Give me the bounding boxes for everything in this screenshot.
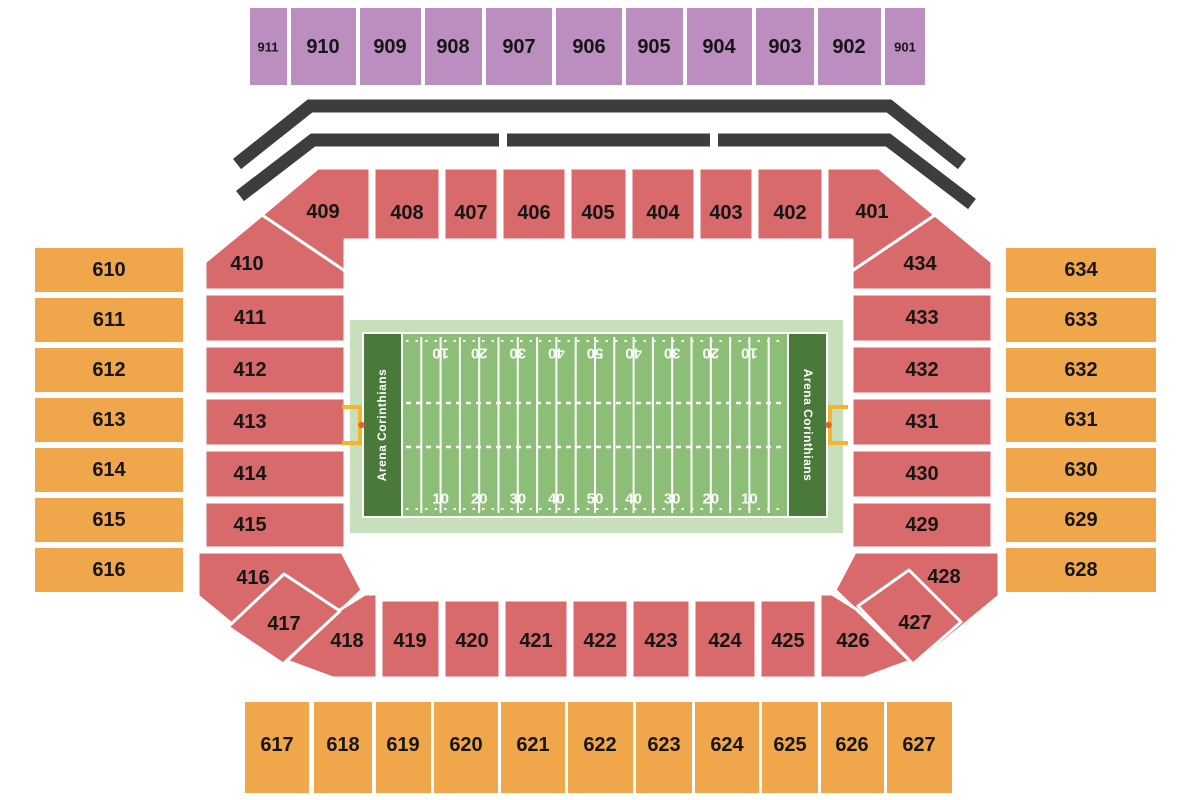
- section-901[interactable]: 901: [885, 8, 925, 85]
- section-label: 418: [330, 630, 363, 652]
- section-403[interactable]: 403: [699, 168, 753, 240]
- section-label: 432: [905, 359, 938, 381]
- section-label: 615: [92, 509, 125, 531]
- goalpost-right-dot: [825, 422, 831, 428]
- section-407[interactable]: 407: [444, 168, 498, 240]
- section-shape[interactable]: [205, 398, 345, 446]
- section-632[interactable]: 632: [1006, 348, 1156, 392]
- yard-number: 30: [509, 345, 526, 362]
- section-626[interactable]: 626: [821, 702, 884, 793]
- section-label: 431: [905, 411, 938, 433]
- section-615[interactable]: 615: [35, 498, 183, 542]
- section-label: 625: [773, 734, 806, 756]
- section-430[interactable]: 430: [852, 450, 992, 498]
- section-624[interactable]: 624: [695, 702, 759, 793]
- section-429[interactable]: 429: [852, 502, 992, 548]
- section-634[interactable]: 634: [1006, 248, 1156, 292]
- yard-number: 10: [741, 345, 758, 362]
- section-406[interactable]: 406: [502, 168, 566, 240]
- section-902[interactable]: 902: [818, 8, 881, 85]
- section-label: 633: [1064, 309, 1097, 331]
- section-620[interactable]: 620: [434, 702, 498, 793]
- section-911[interactable]: 911: [250, 8, 287, 85]
- section-611[interactable]: 611: [35, 298, 183, 342]
- section-label: 611: [93, 309, 125, 331]
- section-label: 430: [905, 463, 938, 485]
- section-label: 412: [233, 359, 266, 381]
- section-433[interactable]: 433: [852, 294, 992, 342]
- section-629[interactable]: 629: [1006, 498, 1156, 542]
- section-label: 413: [233, 411, 266, 433]
- section-label: 618: [326, 734, 359, 756]
- section-907[interactable]: 907: [486, 8, 552, 85]
- section-619[interactable]: 619: [376, 702, 431, 793]
- section-label: 409: [306, 201, 339, 223]
- section-628[interactable]: 628: [1006, 548, 1156, 592]
- yard-number: 30: [664, 491, 681, 508]
- section-label: 429: [905, 514, 938, 536]
- section-631[interactable]: 631: [1006, 398, 1156, 442]
- section-424[interactable]: 424: [694, 600, 756, 678]
- section-label: 421: [519, 630, 552, 652]
- section-label: 630: [1064, 459, 1097, 481]
- goalpost-left-dot: [358, 422, 364, 428]
- section-label: 910: [306, 36, 339, 58]
- section-415[interactable]: 415: [205, 502, 345, 548]
- section-shape[interactable]: [205, 346, 345, 394]
- section-label: 628: [1064, 559, 1097, 581]
- section-shape[interactable]: [205, 294, 345, 342]
- section-label: 424: [708, 630, 742, 652]
- section-432[interactable]: 432: [852, 346, 992, 394]
- section-label: 634: [1064, 259, 1098, 281]
- section-label: 905: [637, 36, 670, 58]
- section-label: 433: [905, 307, 938, 329]
- section-label: 907: [502, 36, 535, 58]
- section-616[interactable]: 616: [35, 548, 183, 592]
- section-431[interactable]: 431: [852, 398, 992, 446]
- section-label: 906: [572, 36, 605, 58]
- yard-number: 10: [432, 491, 449, 508]
- section-label: 428: [927, 566, 960, 588]
- section-623[interactable]: 623: [636, 702, 692, 793]
- section-419[interactable]: 419: [381, 600, 440, 678]
- section-label: 610: [92, 259, 125, 281]
- section-label: 621: [516, 734, 549, 756]
- section-label: 904: [702, 36, 736, 58]
- section-label: 425: [771, 630, 804, 652]
- section-label: 911: [258, 40, 279, 55]
- section-422[interactable]: 422: [572, 600, 628, 678]
- section-label: 627: [902, 734, 935, 756]
- endzone-text-right: Arena Corinthians: [801, 369, 815, 482]
- section-618[interactable]: 618: [314, 702, 372, 793]
- section-label: 416: [236, 567, 269, 589]
- stadium-map: 911 910 909 908 907 906 905 904 903 902 …: [0, 0, 1200, 800]
- section-633[interactable]: 633: [1006, 298, 1156, 342]
- section-613[interactable]: 613: [35, 398, 183, 442]
- section-label: 407: [454, 202, 487, 224]
- section-label: 415: [233, 514, 266, 536]
- section-label: 632: [1064, 359, 1097, 381]
- section-label: 631: [1064, 409, 1097, 431]
- section-label: 402: [773, 202, 806, 224]
- section-627[interactable]: 627: [887, 702, 952, 793]
- section-label: 405: [581, 202, 614, 224]
- section-label: 422: [583, 630, 616, 652]
- section-label: 613: [92, 409, 125, 431]
- section-label: 902: [832, 36, 865, 58]
- section-405[interactable]: 405: [570, 168, 627, 240]
- section-label: 420: [455, 630, 488, 652]
- section-label: 623: [647, 734, 680, 756]
- section-414[interactable]: 414: [205, 450, 345, 498]
- yard-number: 20: [702, 345, 719, 362]
- section-903[interactable]: 903: [756, 8, 814, 85]
- football-field: 10 20 30 40 50 40 30 20 10 10 20 30 40 5…: [342, 320, 848, 533]
- section-shape[interactable]: [205, 502, 345, 548]
- section-910[interactable]: 910: [291, 8, 356, 85]
- section-412[interactable]: 412: [205, 346, 345, 394]
- section-421[interactable]: 421: [504, 600, 568, 678]
- yard-number: 50: [587, 345, 604, 362]
- section-label: 903: [768, 36, 801, 58]
- section-411[interactable]: 411: [205, 294, 345, 342]
- section-label: 411: [234, 307, 266, 329]
- section-label: 629: [1064, 509, 1097, 531]
- section-label: 404: [646, 202, 680, 224]
- yard-number: 40: [625, 491, 642, 508]
- section-423[interactable]: 423: [632, 600, 690, 678]
- section-906[interactable]: 906: [556, 8, 622, 85]
- section-label: 406: [517, 202, 550, 224]
- yard-number: 20: [702, 491, 719, 508]
- section-label: 624: [710, 734, 744, 756]
- section-404[interactable]: 404: [631, 168, 695, 240]
- section-label: 419: [393, 630, 426, 652]
- section-625[interactable]: 625: [762, 702, 818, 793]
- section-612[interactable]: 612: [35, 348, 183, 392]
- section-label: 616: [92, 559, 125, 581]
- section-label: 423: [644, 630, 677, 652]
- section-610[interactable]: 610: [35, 248, 183, 292]
- yard-number: 20: [471, 491, 488, 508]
- section-label: 619: [386, 734, 419, 756]
- yard-number: 50: [587, 491, 604, 508]
- section-413[interactable]: 413: [205, 398, 345, 446]
- section-label: 612: [92, 359, 125, 381]
- yard-number: 20: [471, 345, 488, 362]
- section-label: 620: [449, 734, 482, 756]
- section-402[interactable]: 402: [757, 168, 823, 240]
- section-label: 401: [855, 201, 888, 223]
- section-622[interactable]: 622: [568, 702, 633, 793]
- section-shape[interactable]: [205, 450, 345, 498]
- yard-number: 40: [548, 345, 565, 362]
- yard-number: 10: [432, 345, 449, 362]
- section-label: 408: [390, 202, 423, 224]
- section-label: 417: [267, 613, 300, 635]
- yard-number: 40: [548, 491, 565, 508]
- seating-chart: 911 910 909 908 907 906 905 904 903 902 …: [0, 0, 1200, 800]
- section-label: 901: [894, 40, 916, 55]
- section-label: 426: [836, 630, 869, 652]
- section-label: 427: [898, 612, 931, 634]
- section-425[interactable]: 425: [760, 600, 816, 678]
- section-label: 622: [583, 734, 616, 756]
- section-label: 909: [373, 36, 406, 58]
- section-420[interactable]: 420: [444, 600, 500, 678]
- yard-number: 30: [509, 491, 526, 508]
- section-label: 908: [436, 36, 469, 58]
- section-630[interactable]: 630: [1006, 448, 1156, 492]
- yard-number: 30: [664, 345, 681, 362]
- section-label: 626: [835, 734, 868, 756]
- section-617[interactable]: 617: [245, 702, 309, 793]
- section-label: 434: [903, 253, 937, 275]
- section-label: 414: [233, 463, 267, 485]
- section-904[interactable]: 904: [687, 8, 752, 85]
- section-label: 403: [709, 202, 742, 224]
- section-614[interactable]: 614: [35, 448, 183, 492]
- section-905[interactable]: 905: [626, 8, 683, 85]
- section-408[interactable]: 408: [374, 168, 440, 240]
- section-label: 617: [260, 734, 293, 756]
- section-label: 410: [230, 253, 263, 275]
- section-621[interactable]: 621: [501, 702, 565, 793]
- yard-number: 40: [625, 345, 642, 362]
- section-908[interactable]: 908: [425, 8, 482, 85]
- yard-number: 10: [741, 491, 758, 508]
- section-label: 614: [92, 459, 126, 481]
- endzone-text-left: Arena Corinthians: [375, 369, 389, 482]
- section-909[interactable]: 909: [360, 8, 421, 85]
